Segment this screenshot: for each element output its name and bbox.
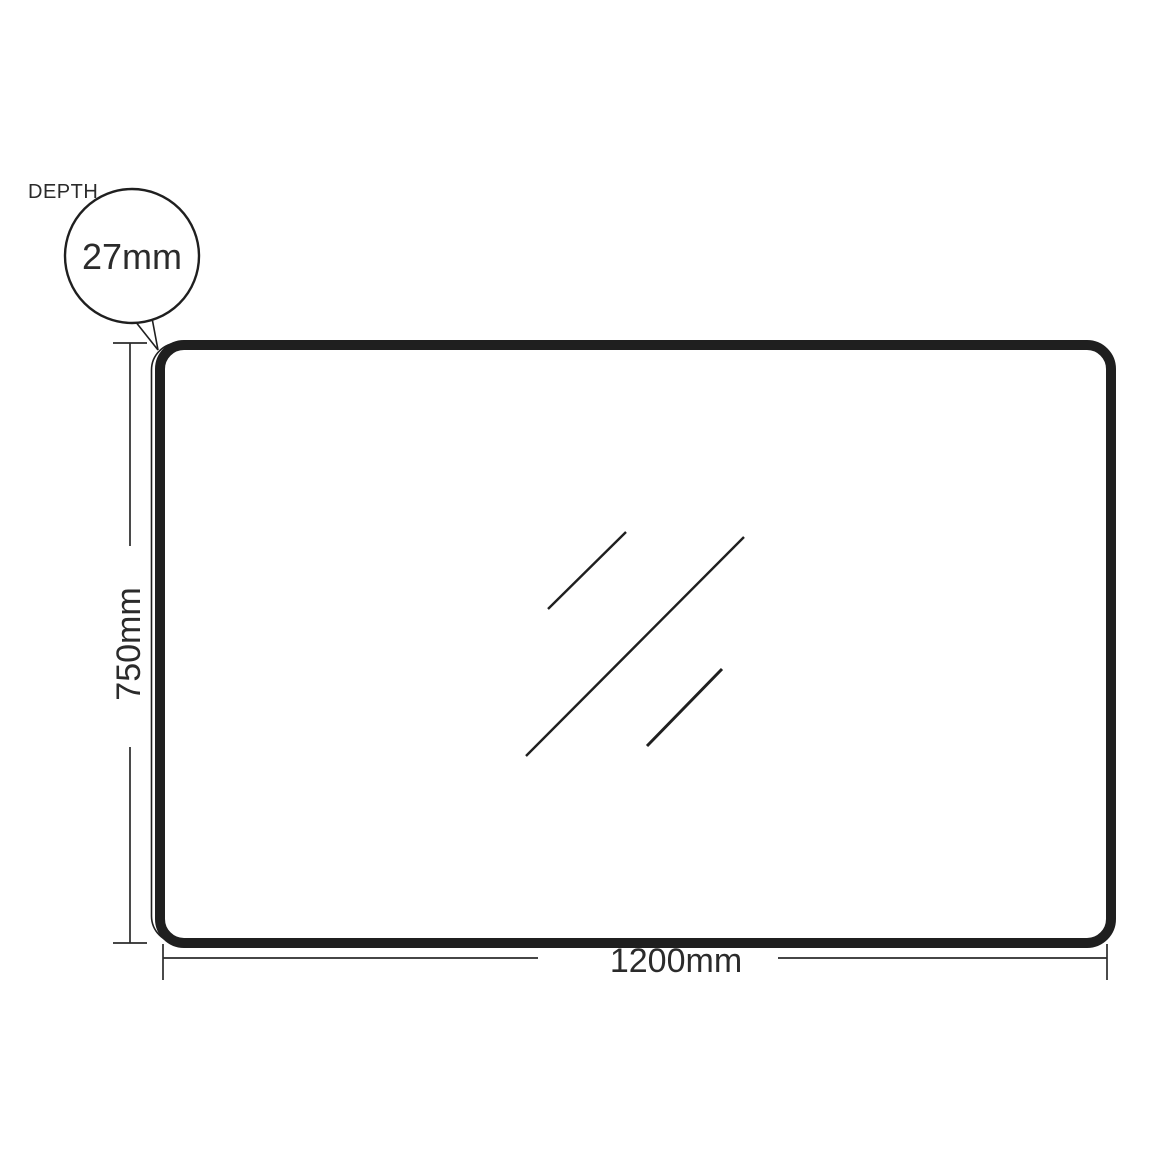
technical-drawing-page: DEPTH 27mm 750mm 1200mm [0,0,1166,1166]
depth-value: 27mm [82,236,182,277]
depth-label: DEPTH [28,181,98,203]
height-dimension-label: 750mm [110,587,148,700]
mirror-frame [160,345,1111,943]
mirror-dimension-diagram: DEPTH 27mm 750mm 1200mm [0,0,1166,1166]
width-dimension-label: 1200mm [610,942,742,980]
